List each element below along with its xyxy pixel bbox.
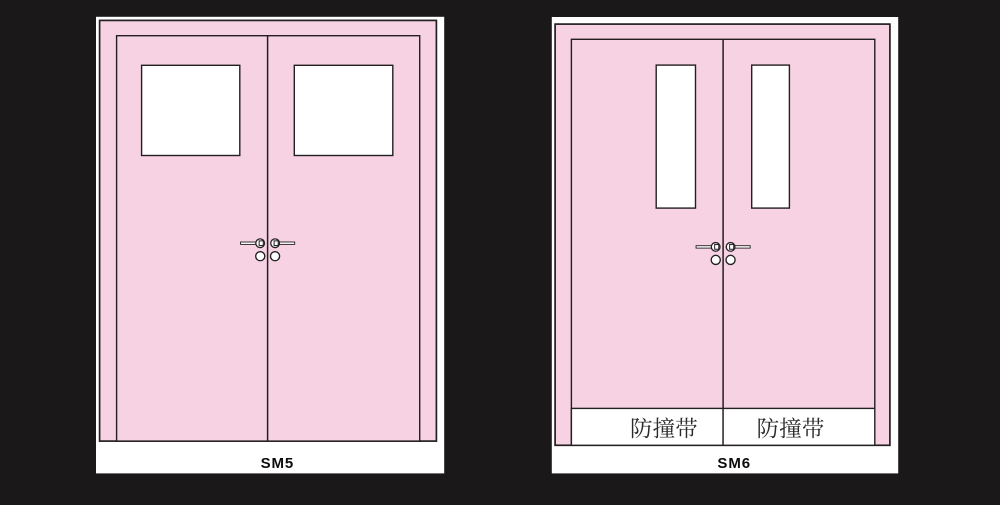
svg-text:SM5: SM5 bbox=[261, 455, 295, 472]
svg-text:SM6: SM6 bbox=[717, 455, 751, 472]
